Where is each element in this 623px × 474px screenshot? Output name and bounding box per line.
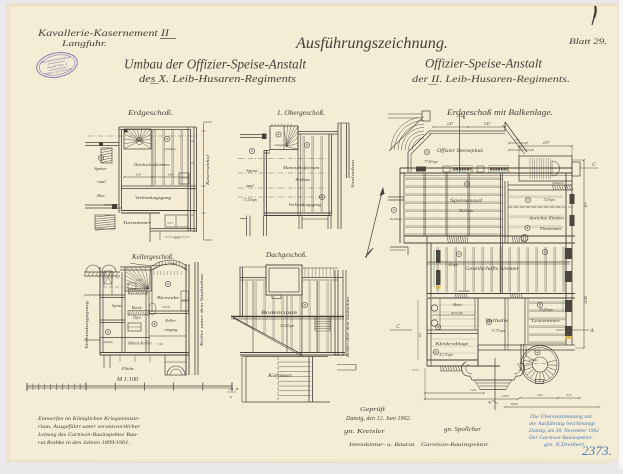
svg-text:Öfen: Öfen <box>133 315 140 320</box>
svg-text:Verbindungsgang: Verbindungsgang <box>84 300 89 349</box>
svg-text:49 qm: 49 qm <box>449 263 458 267</box>
svg-text:gez. N.Dreilbert: gez. N.Dreilbert <box>544 443 585 448</box>
svg-text:Verbindungsgang: Verbindungsgang <box>289 202 323 207</box>
svg-text:Fläche: Fläche <box>121 366 134 371</box>
svg-text:C: C <box>592 162 596 168</box>
svg-text:2373.: 2373. <box>582 444 612 458</box>
svg-text:C: C <box>396 324 400 330</box>
svg-text:Mannschaftsraum: Mannschaftsraum <box>282 165 320 170</box>
svg-text:Speise-: Speise- <box>94 166 108 171</box>
svg-text:Turnzimmer: Turnzimmer <box>123 220 151 225</box>
svg-text:Kavallerie-Kasernement II: Kavallerie-Kasernement II <box>37 28 171 38</box>
svg-text:Speisesaal: Speisesaal <box>450 198 483 204</box>
svg-text:M 1:100: M 1:100 <box>116 377 138 383</box>
svg-text:Offizier-Speise-Anstalt: Offizier-Speise-Anstalt <box>425 57 543 71</box>
svg-text:B: B <box>463 115 466 120</box>
svg-text:Geprüft: Geprüft <box>360 406 385 413</box>
svg-text:Umbau der Offizier-Speise-Anst: Umbau der Offizier-Speise-Anstalt <box>124 58 307 73</box>
svg-text:Saalanbau: Saalanbau <box>350 159 355 188</box>
svg-text:eingang: eingang <box>165 327 178 332</box>
svg-text:Anrichte: Anrichte <box>457 289 470 293</box>
svg-text:A: A <box>589 328 594 334</box>
svg-text:Der Garnison-Bauinspektor.: Der Garnison-Bauinspektor. <box>528 436 593 441</box>
svg-text:Kasernenhof: Kasernenhof <box>205 154 210 187</box>
svg-text:Erdgeschoß.: Erdgeschoß. <box>127 108 173 117</box>
svg-text:Danzig, den 12. Juni 1902.: Danzig, den 12. Juni 1902. <box>345 416 411 422</box>
svg-text:Anrichte Zimmer: Anrichte Zimmer <box>528 216 566 221</box>
svg-text:Spülküche: Spülküche <box>552 182 564 185</box>
svg-text:der II. Leib-Husaren-Regimen: der II. Leib-Husaren-Regiments. <box>412 75 570 85</box>
svg-text:Garnison-Bauinspektor.: Garnison-Bauinspektor. <box>421 442 489 448</box>
svg-text:Kleiderablage: Kleiderablage <box>434 341 468 346</box>
svg-text:Lesezimmer: Lesezimmer <box>530 318 561 323</box>
svg-text:Ausführungszeichnung.: Ausführungszeichnung. <box>295 35 448 52</box>
svg-text:1. Obergeschoß.: 1. Obergeschoß. <box>277 109 325 117</box>
svg-text:saal: saal <box>246 183 254 188</box>
svg-text:des X. Leib-Husaren-Regiments: des X. Leib-Husaren-Regiments <box>139 74 296 85</box>
svg-text:gn. Kreisler: gn. Kreisler <box>344 429 386 435</box>
svg-text:Leitung des Garnison-Bauinspek: Leitung des Garnison-Bauinspektor Bau- <box>37 432 138 438</box>
svg-text:Flurzimmer: Flurzimmer <box>539 226 563 231</box>
svg-text:Danzig, am 30. November 1902: Danzig, am 30. November 1902 <box>528 429 600 434</box>
svg-text:rat Rothke in den Jahren 1899/: rat Rothke in den Jahren 1899/1901. <box>38 440 130 446</box>
svg-text:Kammer: Kammer <box>267 374 292 379</box>
svg-text:Dachgeschoß.: Dachgeschoß. <box>265 250 307 259</box>
svg-text:Verbindungsgang: Verbindungsgang <box>135 195 172 200</box>
svg-text:Offizier Speiseplatz: Offizier Speiseplatz <box>437 149 483 154</box>
svg-text:Entworfen im Königlichen Krieg: Entworfen im Königlichen Kriegsministe- <box>37 415 140 422</box>
svg-text:Die Übereinstimmung mit: Die Übereinstimmung mit <box>529 414 593 420</box>
svg-text:Durchschießzimmer: Durchschießzimmer <box>133 162 170 167</box>
svg-text:Keller unter dem Saalanbau: Keller unter dem Saalanbau <box>199 273 204 348</box>
svg-text:Anrichte: Anrichte <box>450 311 463 315</box>
svg-text:der Ausführung beschleunigt: der Ausführung beschleunigt <box>529 422 596 427</box>
svg-text:-saal: -saal <box>96 179 106 184</box>
svg-text:Heizkörper: Heizkörper <box>295 178 311 182</box>
svg-text:Boden über dem Saalanbau: Boden über dem Saalanbau <box>345 297 350 357</box>
svg-text:Blatt 29.: Blatt 29. <box>569 37 607 46</box>
svg-text:gn. Spollcher: gn. Spollcher <box>444 427 482 433</box>
svg-text:Gesellschafts Zimmer: Gesellschafts Zimmer <box>465 267 519 272</box>
svg-text:Bierstube: Bierstube <box>157 295 179 300</box>
svg-text:Speise: Speise <box>112 303 122 308</box>
svg-text:rium. Ausgeführt unter verantw: rium. Ausgeführt unter verantwortlicher <box>38 423 141 430</box>
svg-text:Kellergeschoß.: Kellergeschoß. <box>131 252 174 261</box>
svg-text:Intendantur- u. Baurat.: Intendantur- u. Baurat. <box>348 442 416 448</box>
svg-text:m: m <box>236 387 239 391</box>
svg-text:Lampenz.: Lampenz. <box>273 143 287 147</box>
svg-text:Keller-: Keller- <box>164 318 177 323</box>
svg-text:Speise: Speise <box>246 168 257 173</box>
svg-text:Bodenraum: Bodenraum <box>261 311 298 316</box>
svg-text:Langfuhr.: Langfuhr. <box>61 38 107 48</box>
svg-text:Alter.: Alter. <box>96 193 106 198</box>
svg-text:Küche: Küche <box>131 305 143 310</box>
svg-text:Abort: Abort <box>451 302 462 307</box>
